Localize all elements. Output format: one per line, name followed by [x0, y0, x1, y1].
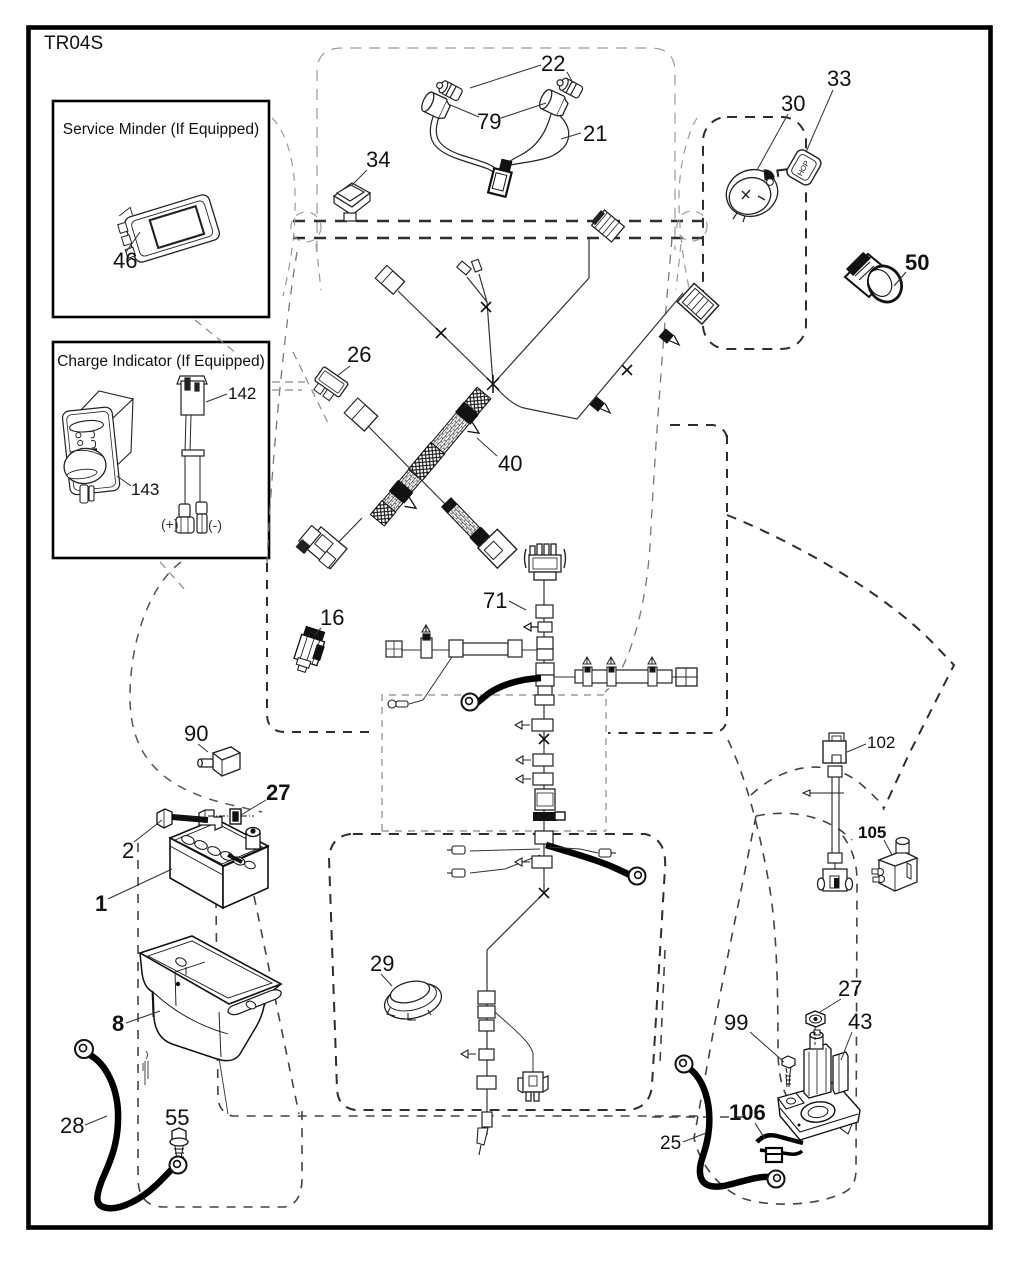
svg-text:8: 8 [112, 1011, 124, 1036]
svg-text:TR04S: TR04S [44, 33, 103, 54]
svg-text:27: 27 [838, 976, 862, 1001]
svg-text:46: 46 [113, 248, 137, 273]
svg-text:40: 40 [498, 451, 522, 476]
svg-text:142: 142 [228, 384, 256, 403]
svg-text:(+): (+) [161, 516, 179, 532]
svg-text:Charge Indicator (If Equipped): Charge Indicator (If Equipped) [57, 353, 265, 370]
svg-text:79: 79 [477, 109, 501, 134]
svg-text:16: 16 [320, 605, 344, 630]
svg-text:105: 105 [858, 823, 886, 842]
svg-text:27: 27 [266, 780, 290, 805]
svg-text:43: 43 [848, 1009, 872, 1034]
svg-text:102: 102 [867, 733, 895, 752]
svg-text:33: 33 [827, 66, 851, 91]
svg-text:26: 26 [347, 342, 371, 367]
svg-text:99: 99 [724, 1010, 748, 1035]
svg-text:55: 55 [165, 1105, 189, 1130]
svg-text:71: 71 [483, 588, 507, 613]
svg-text:90: 90 [184, 721, 208, 746]
svg-text:1: 1 [95, 891, 107, 916]
svg-text:21: 21 [583, 121, 607, 146]
svg-text:(-): (-) [208, 517, 222, 533]
svg-text:2: 2 [122, 838, 134, 863]
svg-text:22: 22 [541, 51, 565, 76]
svg-text:Service Minder (If Equipped): Service Minder (If Equipped) [63, 121, 259, 138]
svg-text:143: 143 [131, 480, 159, 499]
svg-text:30: 30 [781, 91, 805, 116]
svg-text:29: 29 [370, 951, 394, 976]
svg-text:34: 34 [366, 147, 390, 172]
svg-text:28: 28 [60, 1113, 84, 1138]
svg-text:50: 50 [905, 250, 929, 275]
svg-text:25: 25 [660, 1133, 681, 1154]
svg-text:106: 106 [729, 1100, 766, 1125]
